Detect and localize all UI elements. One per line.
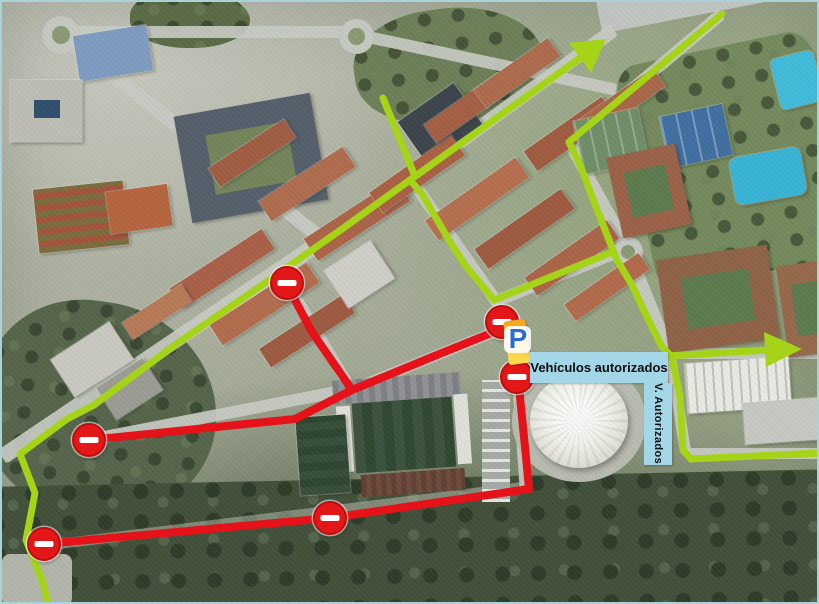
authorized-vehicles-label: Vehículos autorizados — [530, 352, 668, 383]
aerial-route-map: P Vehículos autorizados V. Autorizados — [0, 0, 819, 604]
no-entry-sign — [313, 501, 347, 535]
vertical-label-text: V. Autorizados — [652, 383, 664, 464]
no-entry-sign — [270, 266, 304, 300]
no-entry-sign — [27, 527, 61, 561]
no-entry-sign — [500, 360, 534, 394]
parking-icon: P — [503, 323, 533, 355]
no-entry-sign — [72, 423, 106, 457]
authorized-vehicles-vertical-label: V. Autorizados — [644, 383, 672, 465]
no-entry-sign-layer — [2, 2, 819, 604]
